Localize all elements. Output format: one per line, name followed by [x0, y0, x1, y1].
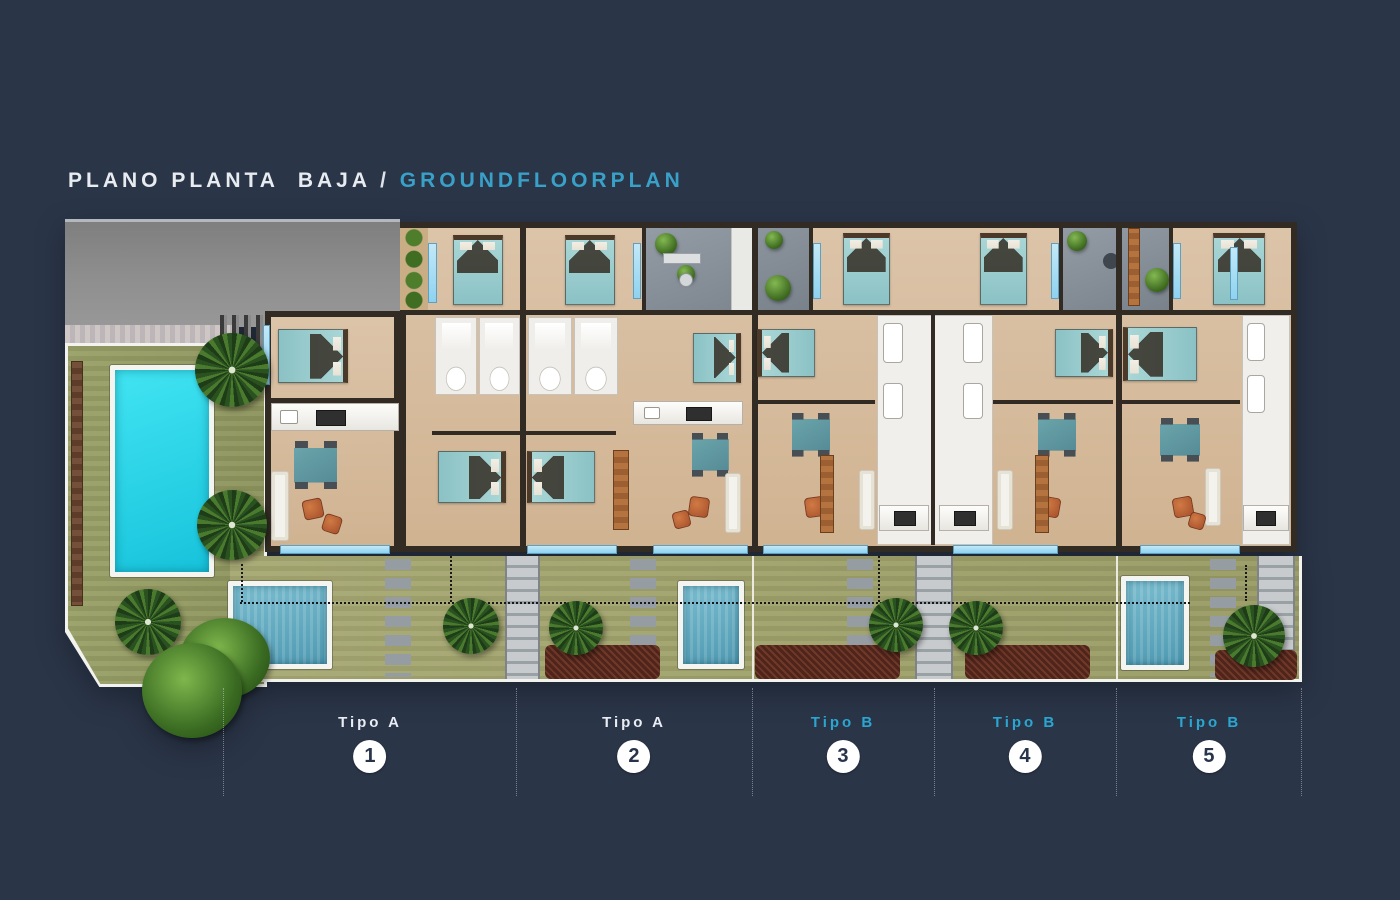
- unit-number-badge: 5: [1192, 740, 1225, 773]
- terrace-door: [653, 545, 748, 554]
- title-spanish: PLANO PLANTA BAJA: [68, 169, 370, 192]
- window-strip: [1051, 243, 1059, 299]
- palm-tree-icon: [949, 601, 1003, 655]
- palm-tree-icon: [115, 589, 181, 655]
- patio-plant: [655, 233, 677, 255]
- sofa: [859, 470, 875, 530]
- page-title: PLANO PLANTA BAJA / GROUNDFLOORPLAN: [68, 169, 684, 193]
- dining-set: [787, 413, 835, 457]
- stove: [1256, 511, 1276, 526]
- palm-tree-icon: [549, 601, 603, 655]
- patio-table: [679, 273, 693, 287]
- bed: [565, 235, 615, 305]
- dining-set: [687, 433, 733, 477]
- window-strip: [1173, 243, 1181, 299]
- plot-dotted-line: [240, 602, 1190, 604]
- garden-fence: [752, 556, 754, 679]
- unit-divider-line: [1301, 688, 1302, 796]
- unit-label-5: Tipo B 5: [1177, 714, 1241, 773]
- unit-type-label: Tipo A: [338, 714, 402, 731]
- wardrobe: [613, 450, 629, 530]
- dining-set: [1155, 418, 1205, 462]
- kitchen-counter: [633, 401, 743, 425]
- interior-wall: [1116, 228, 1122, 546]
- kitchen-counter: [1243, 505, 1289, 531]
- private-pool-water: [1126, 581, 1184, 665]
- plot-dotted-line: [878, 556, 880, 602]
- dining-set: [1033, 413, 1081, 457]
- interior-wall: [642, 228, 646, 310]
- bed: [693, 333, 741, 383]
- unit-divider-line: [752, 688, 753, 796]
- unit-type-label: Tipo B: [811, 714, 875, 731]
- interior-wall: [520, 228, 526, 546]
- terrace-door: [280, 545, 390, 554]
- unit-type-label: Tipo A: [602, 714, 666, 731]
- window-strip: [428, 243, 437, 303]
- patio-plant: [1145, 268, 1169, 292]
- bathroom: [435, 317, 477, 395]
- bed: [1123, 327, 1197, 381]
- kitchen-sink: [644, 407, 660, 419]
- staircase-walkway: [505, 556, 540, 679]
- interior-wall: [755, 400, 875, 404]
- unit-divider-line: [1116, 688, 1117, 796]
- patio-bench: [663, 253, 701, 264]
- interior-wall: [931, 315, 935, 545]
- communal-pool-water: [115, 370, 209, 572]
- wardrobe: [820, 455, 834, 533]
- mulch-bed: [755, 645, 900, 679]
- patio-plant: [765, 275, 791, 301]
- bed: [1213, 233, 1265, 305]
- palm-tree-icon: [197, 490, 267, 560]
- terrace-door: [953, 545, 1058, 554]
- bathroom: [528, 317, 572, 395]
- unit-number-badge: 4: [1008, 740, 1041, 773]
- sofa: [725, 473, 741, 533]
- interior-wall: [526, 431, 616, 435]
- terrace-door: [527, 545, 617, 554]
- palm-tree-icon: [443, 598, 499, 654]
- window-strip: [813, 243, 821, 299]
- unit-divider-line: [223, 688, 224, 796]
- bathtub: [883, 323, 903, 363]
- wardrobe: [1035, 455, 1049, 533]
- bathtub: [883, 383, 903, 419]
- unit-label-3: Tipo B 3: [811, 714, 875, 773]
- interior-wall: [432, 431, 520, 435]
- sofa: [1205, 468, 1221, 526]
- kitchen-sink: [280, 410, 298, 424]
- patio-plant: [765, 231, 783, 249]
- sofa: [271, 471, 289, 541]
- title-separator: /: [370, 169, 400, 192]
- armchair: [301, 497, 325, 521]
- bed: [1055, 329, 1113, 377]
- plot-dotted-line: [450, 556, 452, 602]
- bed: [438, 451, 506, 503]
- bathtub: [1247, 375, 1265, 413]
- stepping-stones: [385, 559, 411, 677]
- window-strip: [633, 243, 641, 299]
- bed: [980, 233, 1027, 305]
- unit-type-label: Tipo B: [993, 714, 1057, 731]
- palm-tree-icon: [1223, 605, 1285, 667]
- page-background: { "title": { "primary": "PLANO PLANTA BA…: [0, 0, 1400, 900]
- private-pool: [678, 581, 744, 669]
- palm-tree-icon: [195, 333, 269, 407]
- bed: [757, 329, 815, 377]
- bed: [453, 235, 503, 305]
- armchair: [688, 496, 711, 519]
- dining-set: [289, 441, 343, 489]
- terrace-door: [763, 545, 868, 554]
- stove: [954, 511, 976, 526]
- interior-wall: [752, 228, 758, 546]
- private-pool: [1121, 576, 1189, 670]
- bathtub: [963, 383, 983, 419]
- palm-tree-icon: [869, 598, 923, 652]
- unit-number-badge: 3: [826, 740, 859, 773]
- unit-label-1: Tipo A 1: [338, 714, 402, 773]
- plot-dotted-line: [1245, 565, 1247, 601]
- bed: [527, 451, 595, 503]
- interior-wall: [400, 310, 1297, 315]
- patio-plant: [1067, 231, 1087, 251]
- wood-deck: [71, 361, 83, 606]
- planter-hedge: [400, 228, 428, 310]
- stove: [316, 410, 346, 426]
- floor-plan: [65, 213, 1302, 680]
- terrace-door: [1140, 545, 1240, 554]
- interior-wall: [1116, 400, 1240, 404]
- unit-divider-line: [934, 688, 935, 796]
- interior-wall: [993, 400, 1113, 404]
- bush-tree-icon: [142, 643, 242, 738]
- title-english: GROUNDFLOORPLAN: [400, 169, 684, 192]
- unit-label-2: Tipo A 2: [602, 714, 666, 773]
- bathroom: [574, 317, 618, 395]
- sofa: [997, 470, 1013, 530]
- plot-dotted-line: [241, 564, 243, 602]
- unit-type-label: Tipo B: [1177, 714, 1241, 731]
- interior-wall: [1059, 228, 1063, 310]
- kitchen-counter: [271, 403, 399, 431]
- communal-pool: [110, 365, 214, 577]
- kitchen-counter: [879, 505, 929, 531]
- bathroom: [479, 317, 520, 395]
- bed: [843, 233, 890, 305]
- garden-fence: [1116, 556, 1118, 679]
- unit-number-badge: 1: [353, 740, 386, 773]
- stove: [894, 511, 916, 526]
- kitchen-counter: [939, 505, 989, 531]
- window-strip: [1230, 247, 1238, 300]
- bathtub: [963, 323, 983, 363]
- bed: [278, 329, 348, 383]
- unit-label-4: Tipo B 4: [993, 714, 1057, 773]
- unit-number-badge: 2: [617, 740, 650, 773]
- stove: [686, 407, 712, 421]
- private-pool-water: [683, 586, 739, 664]
- unit-divider-line: [516, 688, 517, 796]
- bathtub: [1247, 323, 1265, 361]
- patio-pergola-bench: [1128, 228, 1140, 306]
